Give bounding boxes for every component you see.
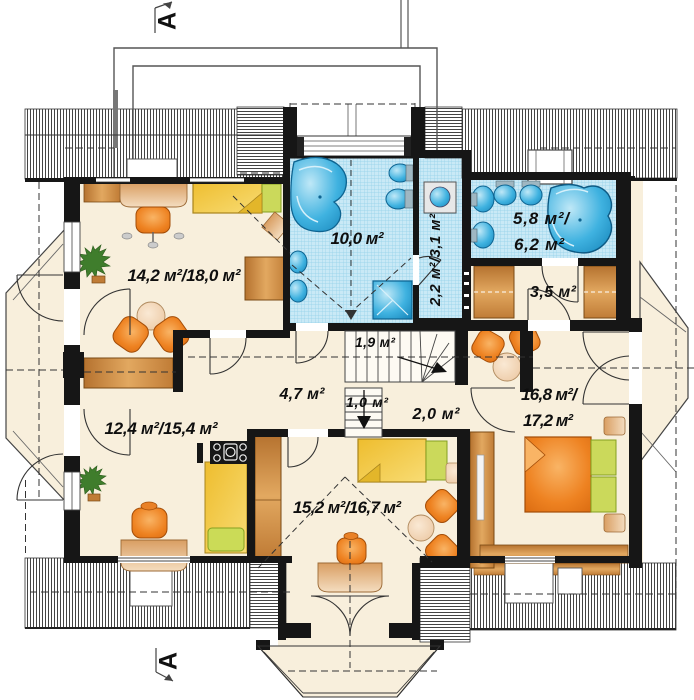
svg-text:A: A [155, 652, 183, 670]
svg-text:17,2 м²: 17,2 м² [523, 411, 574, 430]
svg-text:2,2 м²/3,1 м²: 2,2 м²/3,1 м² [427, 213, 444, 307]
svg-text:3,5 м²: 3,5 м² [530, 284, 577, 301]
svg-text:1,9 м²: 1,9 м² [355, 334, 395, 350]
svg-text:6,2 м²: 6,2 м² [514, 235, 565, 254]
svg-text:5,8 м²/: 5,8 м²/ [513, 209, 571, 228]
svg-text:12,4 м²/15,4 м²: 12,4 м²/15,4 м² [105, 419, 219, 438]
svg-text:A: A [154, 12, 182, 30]
svg-text:10,0 м²: 10,0 м² [331, 229, 385, 248]
svg-text:4,7 м²: 4,7 м² [279, 386, 326, 403]
svg-text:14,2 м²/18,0 м²: 14,2 м²/18,0 м² [128, 266, 242, 285]
svg-text:16,8 м²/: 16,8 м²/ [521, 385, 579, 404]
svg-text:2,0 м²: 2,0 м² [412, 406, 461, 423]
svg-text:15,2 м²/16,7 м²: 15,2 м²/16,7 м² [293, 498, 402, 517]
svg-text:1,0 м²: 1,0 м² [346, 394, 388, 410]
